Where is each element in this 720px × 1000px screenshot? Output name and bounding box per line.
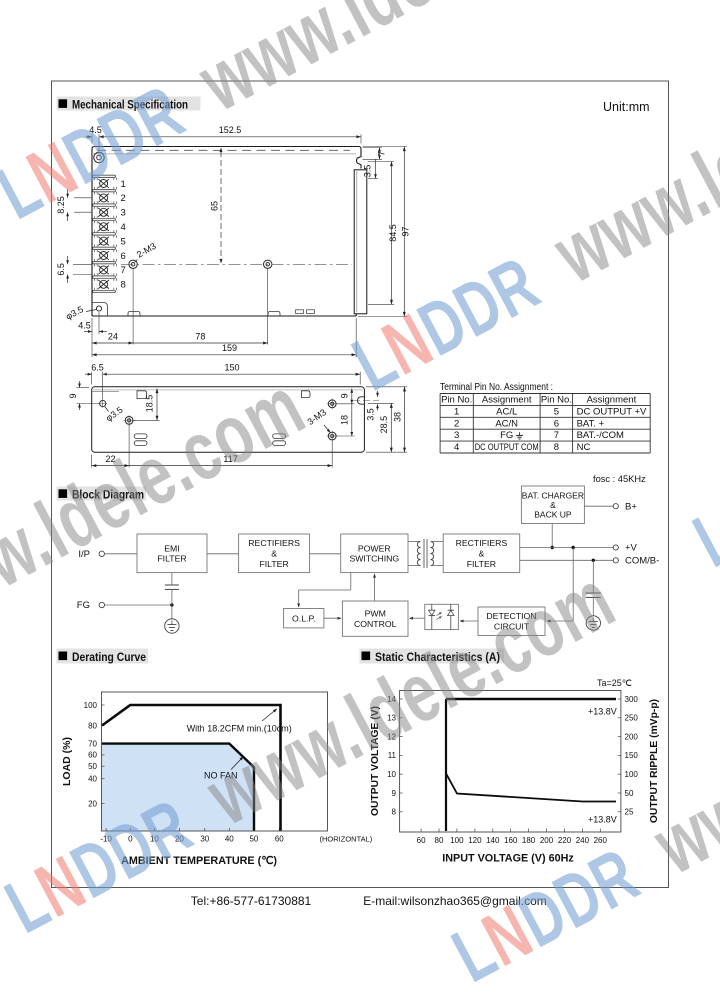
svg-text:φ3.5: φ3.5 [64,304,85,321]
svg-text:3: 3 [454,430,459,441]
svg-text:0: 0 [128,835,133,844]
svg-text:Block Diagram: Block Diagram [72,487,144,501]
svg-text:100: 100 [84,701,98,710]
svg-text:Unit:mm: Unit:mm [603,100,650,114]
svg-text:5: 5 [554,406,559,417]
svg-text:120: 120 [468,836,482,845]
svg-text:Mechanical Specification: Mechanical Specification [72,97,188,111]
svg-text:3.5: 3.5 [363,165,373,178]
svg-text:8: 8 [121,280,126,291]
svg-text:DC OUTPUT COM: DC OUTPUT COM [475,442,539,453]
svg-text:180: 180 [522,836,536,845]
svg-text:+13.8V: +13.8V [588,815,617,825]
svg-text:6: 6 [554,418,559,429]
svg-text:4: 4 [121,222,126,233]
svg-text:6.5: 6.5 [91,363,104,373]
svg-text:3: 3 [121,208,126,219]
svg-text:2-M3: 2-M3 [135,241,158,260]
svg-text:+V: +V [625,543,638,554]
svg-text:POWER: POWER [358,543,391,553]
svg-text:4.5: 4.5 [78,320,91,330]
svg-text:COM/B-: COM/B- [625,556,659,567]
svg-text:100: 100 [625,770,639,779]
svg-text:50: 50 [625,789,634,798]
svg-text:&: & [479,549,485,559]
svg-text:7: 7 [554,430,559,441]
svg-text:159: 159 [222,343,237,353]
svg-text:INPUT VOLTAGE (V) 60Hz: INPUT VOLTAGE (V) 60Hz [442,853,574,865]
svg-text:25: 25 [625,808,634,817]
svg-text:78: 78 [195,332,205,342]
svg-text:152.5: 152.5 [219,125,242,135]
svg-text:FILTER: FILTER [259,559,288,569]
svg-text:&: & [271,549,277,559]
svg-text:200: 200 [540,836,554,845]
svg-text:14: 14 [387,695,396,704]
svg-text:250: 250 [625,714,639,723]
svg-text:200: 200 [625,732,639,741]
svg-text:18: 18 [340,415,350,425]
svg-text:E-mail:wilsonzhao365@gmail.com: E-mail:wilsonzhao365@gmail.com [363,894,547,908]
svg-text:BAT. CHARGER: BAT. CHARGER [522,490,584,500]
svg-text:80: 80 [88,721,97,730]
svg-text:22: 22 [105,454,115,464]
svg-text:Assignment: Assignment [482,395,532,406]
svg-text:6.5: 6.5 [56,263,66,276]
svg-text:80: 80 [435,836,444,845]
svg-text:30: 30 [200,835,209,844]
svg-text:240: 240 [576,836,590,845]
svg-text:10: 10 [150,835,159,844]
svg-text:97: 97 [401,226,411,236]
svg-text:1: 1 [121,179,126,190]
svg-text:7: 7 [121,265,126,276]
svg-text:8: 8 [392,808,397,817]
svg-text:NC: NC [577,442,591,453]
svg-text:4.5: 4.5 [89,125,102,135]
svg-text:70: 70 [88,739,97,748]
svg-text:60: 60 [417,836,426,845]
svg-text:40: 40 [88,775,97,784]
svg-text:RECTIFIERS: RECTIFIERS [456,538,508,548]
svg-text:20: 20 [88,799,97,808]
svg-text:LOAD (%): LOAD (%) [61,737,73,786]
svg-text:I/P: I/P [78,549,90,560]
svg-text:3-M3: 3-M3 [306,407,329,427]
svg-text:BAT. +: BAT. + [577,418,605,429]
svg-text:65: 65 [210,201,220,211]
svg-text:38: 38 [392,412,402,422]
svg-text:With 18.2CFM min.(10cm): With 18.2CFM min.(10cm) [187,724,292,734]
svg-text:BACK UP: BACK UP [534,510,572,520]
svg-text:SWITCHING: SWITCHING [349,554,399,564]
svg-text:Static Characteristics (A): Static Characteristics (A) [375,650,500,664]
svg-text:2: 2 [121,193,126,204]
svg-text:Terminal Pin No. Assignment :: Terminal Pin No. Assignment : [440,382,553,393]
svg-text:RECTIFIERS: RECTIFIERS [248,538,300,548]
svg-text:EMI: EMI [164,543,179,553]
svg-text:CONTROL: CONTROL [354,619,397,629]
svg-text:220: 220 [558,836,572,845]
svg-text:BAT.-/COM: BAT.-/COM [577,430,624,441]
svg-text:4: 4 [454,442,459,453]
svg-text:300: 300 [625,695,639,704]
svg-text:PWM: PWM [365,609,386,619]
svg-text:(HORIZONTAL): (HORIZONTAL) [320,835,373,844]
svg-text:60: 60 [88,751,97,760]
svg-text:Derating Curve: Derating Curve [72,650,146,664]
svg-text:OUTPUT RIPPLE (mVp-p): OUTPUT RIPPLE (mVp-p) [649,699,660,823]
svg-text:9: 9 [392,789,397,798]
svg-text:fosc : 45KHz: fosc : 45KHz [593,474,646,484]
svg-text:Tel:+86-577-61730881: Tel:+86-577-61730881 [191,894,312,908]
svg-text:260: 260 [594,836,608,845]
svg-text:28.5: 28.5 [379,416,389,434]
svg-text:O.L.P.: O.L.P. [292,613,316,623]
svg-text:40: 40 [225,835,234,844]
svg-text:+13.8V: +13.8V [588,707,617,717]
svg-text:DC OUTPUT +V: DC OUTPUT +V [577,406,647,417]
svg-text:160: 160 [504,836,518,845]
svg-text:7: 7 [377,151,387,156]
svg-text:9: 9 [340,393,350,398]
svg-text:AC/L: AC/L [496,406,517,417]
svg-text:Pin No.: Pin No. [441,395,472,406]
svg-text:24: 24 [108,332,118,342]
svg-text:18.5: 18.5 [145,395,155,413]
svg-text:FG: FG [500,430,513,441]
svg-text:20: 20 [175,835,184,844]
svg-text:&: & [550,500,556,510]
svg-text:CIRCUIT: CIRCUIT [494,622,530,632]
svg-text:6: 6 [121,251,126,262]
svg-text:12: 12 [387,732,396,741]
svg-text:13: 13 [387,714,396,723]
svg-text:8: 8 [554,442,559,453]
svg-text:2: 2 [454,418,459,429]
svg-text:140: 140 [486,836,500,845]
svg-text:50: 50 [249,835,258,844]
svg-text:B+: B+ [625,501,637,512]
svg-text:Assignment: Assignment [587,395,637,406]
svg-text:FILTER: FILTER [467,559,496,569]
svg-text:11: 11 [388,751,397,760]
svg-text:DETECTION: DETECTION [486,611,536,621]
svg-text:150: 150 [224,363,239,373]
svg-text:9: 9 [68,393,78,398]
svg-text:AC/N: AC/N [495,418,518,429]
svg-text:FG: FG [77,600,90,611]
svg-text:3.5: 3.5 [366,408,376,421]
svg-text:8.25: 8.25 [56,196,66,214]
svg-text:NO FAN: NO FAN [204,771,238,781]
svg-text:5: 5 [121,236,126,247]
svg-text:60: 60 [275,835,284,844]
svg-text:50: 50 [88,762,97,771]
svg-text:AMBIENT TEMPERATURE (℃): AMBIENT TEMPERATURE (℃) [121,855,277,867]
svg-text:Ta=25℃: Ta=25℃ [597,678,632,688]
svg-text:φ3.5: φ3.5 [104,405,125,424]
svg-text:1: 1 [454,406,459,417]
svg-text:-10: -10 [100,835,112,844]
svg-text:150: 150 [625,751,639,760]
svg-text:117: 117 [223,454,237,464]
svg-text:84.5: 84.5 [388,224,398,242]
svg-text:10: 10 [387,770,396,779]
svg-text:100: 100 [450,836,464,845]
svg-text:Pin No.: Pin No. [541,395,572,406]
svg-text:OUTPUT VOLTAGE (V): OUTPUT VOLTAGE (V) [370,706,381,816]
svg-text:FILTER: FILTER [157,554,186,564]
